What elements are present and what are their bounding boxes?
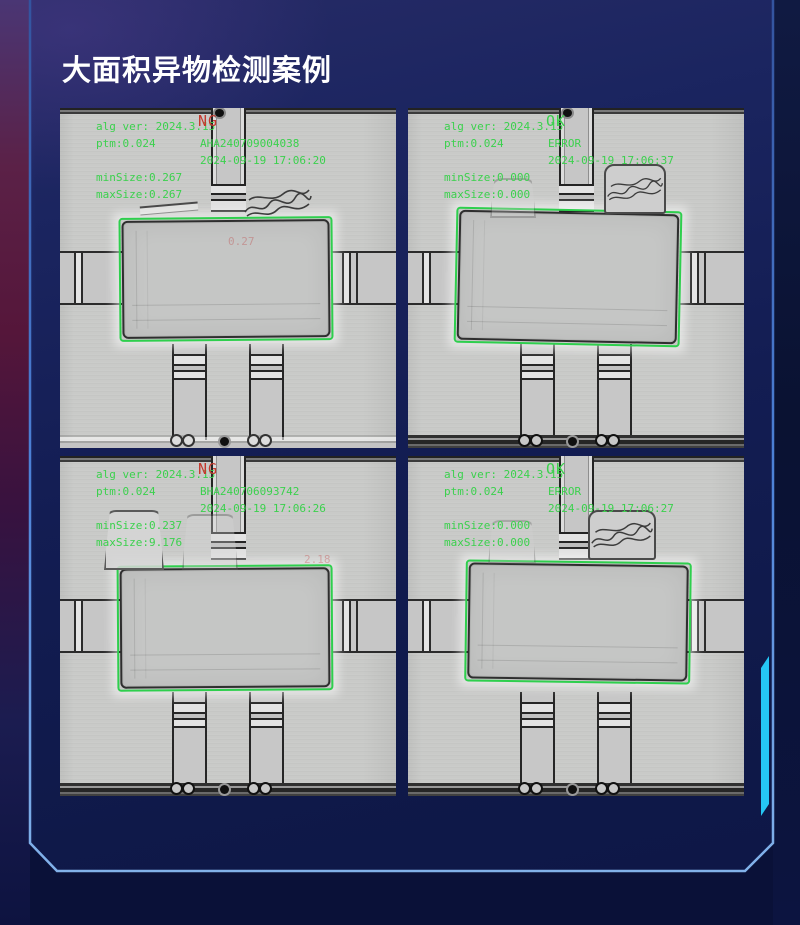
serial-code: AHA240709004038: [200, 138, 299, 149]
status-label: OK: [546, 114, 566, 129]
overlay-text: alg ver: 2024.3.15 OK ptm:0.024 ERROR 20…: [408, 456, 744, 796]
ptm-label: ptm:0.024: [96, 138, 156, 149]
timestamp: 2024-09-19 17:06:20: [200, 155, 326, 166]
serial-code: ERROR: [548, 138, 581, 149]
max-size-label: maxSize:0.000: [444, 537, 530, 548]
status-label: OK: [546, 462, 566, 477]
cyan-accent-bar: [761, 656, 769, 816]
min-size-label: minSize:0.000: [444, 520, 530, 531]
status-label: NG: [198, 114, 218, 129]
page-title: 大面积异物检测案例: [62, 47, 332, 89]
min-size-label: minSize:0.267: [96, 172, 182, 183]
faint-measure-mark: 0.27: [228, 236, 255, 247]
timestamp: 2024-09-19 17:06:26: [200, 503, 326, 514]
xray-image-bottom-right: alg ver: 2024.3.15 OK ptm:0.024 ERROR 20…: [408, 456, 744, 796]
overlay-text: alg ver: 2024.3.15 OK ptm:0.024 ERROR 20…: [408, 108, 744, 448]
ptm-label: ptm:0.024: [444, 138, 504, 149]
serial-code: ERROR: [548, 486, 581, 497]
faint-measure-mark: 2.18: [304, 554, 331, 565]
xray-image-bottom-left: alg ver: 2024.3.15 NG ptm:0.024 BHA24070…: [60, 456, 396, 796]
timestamp: 2024-09-19 17:06:27: [548, 503, 674, 514]
serial-code: BHA240706093742: [200, 486, 299, 497]
max-size-label: maxSize:9.176: [96, 537, 182, 548]
max-size-label: maxSize:0.000: [444, 189, 530, 200]
xray-image-top-right: alg ver: 2024.3.15 OK ptm:0.024 ERROR 20…: [408, 108, 744, 448]
overlay-text: alg ver: 2024.3.15 NG ptm:0.024 AHA24070…: [60, 108, 396, 448]
status-label: NG: [198, 462, 218, 477]
min-size-label: minSize:0.237: [96, 520, 182, 531]
overlay-text: alg ver: 2024.3.15 NG ptm:0.024 BHA24070…: [60, 456, 396, 796]
xray-grid: alg ver: 2024.3.15 NG ptm:0.024 AHA24070…: [60, 108, 744, 796]
ptm-label: ptm:0.024: [96, 486, 156, 497]
min-size-label: minSize:0.000: [444, 172, 530, 183]
max-size-label: maxSize:0.267: [96, 189, 182, 200]
slide: 大面积异物检测案例 alg ver:: [0, 0, 800, 925]
ptm-label: ptm:0.024: [444, 486, 504, 497]
timestamp: 2024-09-19 17:06:37: [548, 155, 674, 166]
xray-image-top-left: alg ver: 2024.3.15 NG ptm:0.024 AHA24070…: [60, 108, 396, 448]
